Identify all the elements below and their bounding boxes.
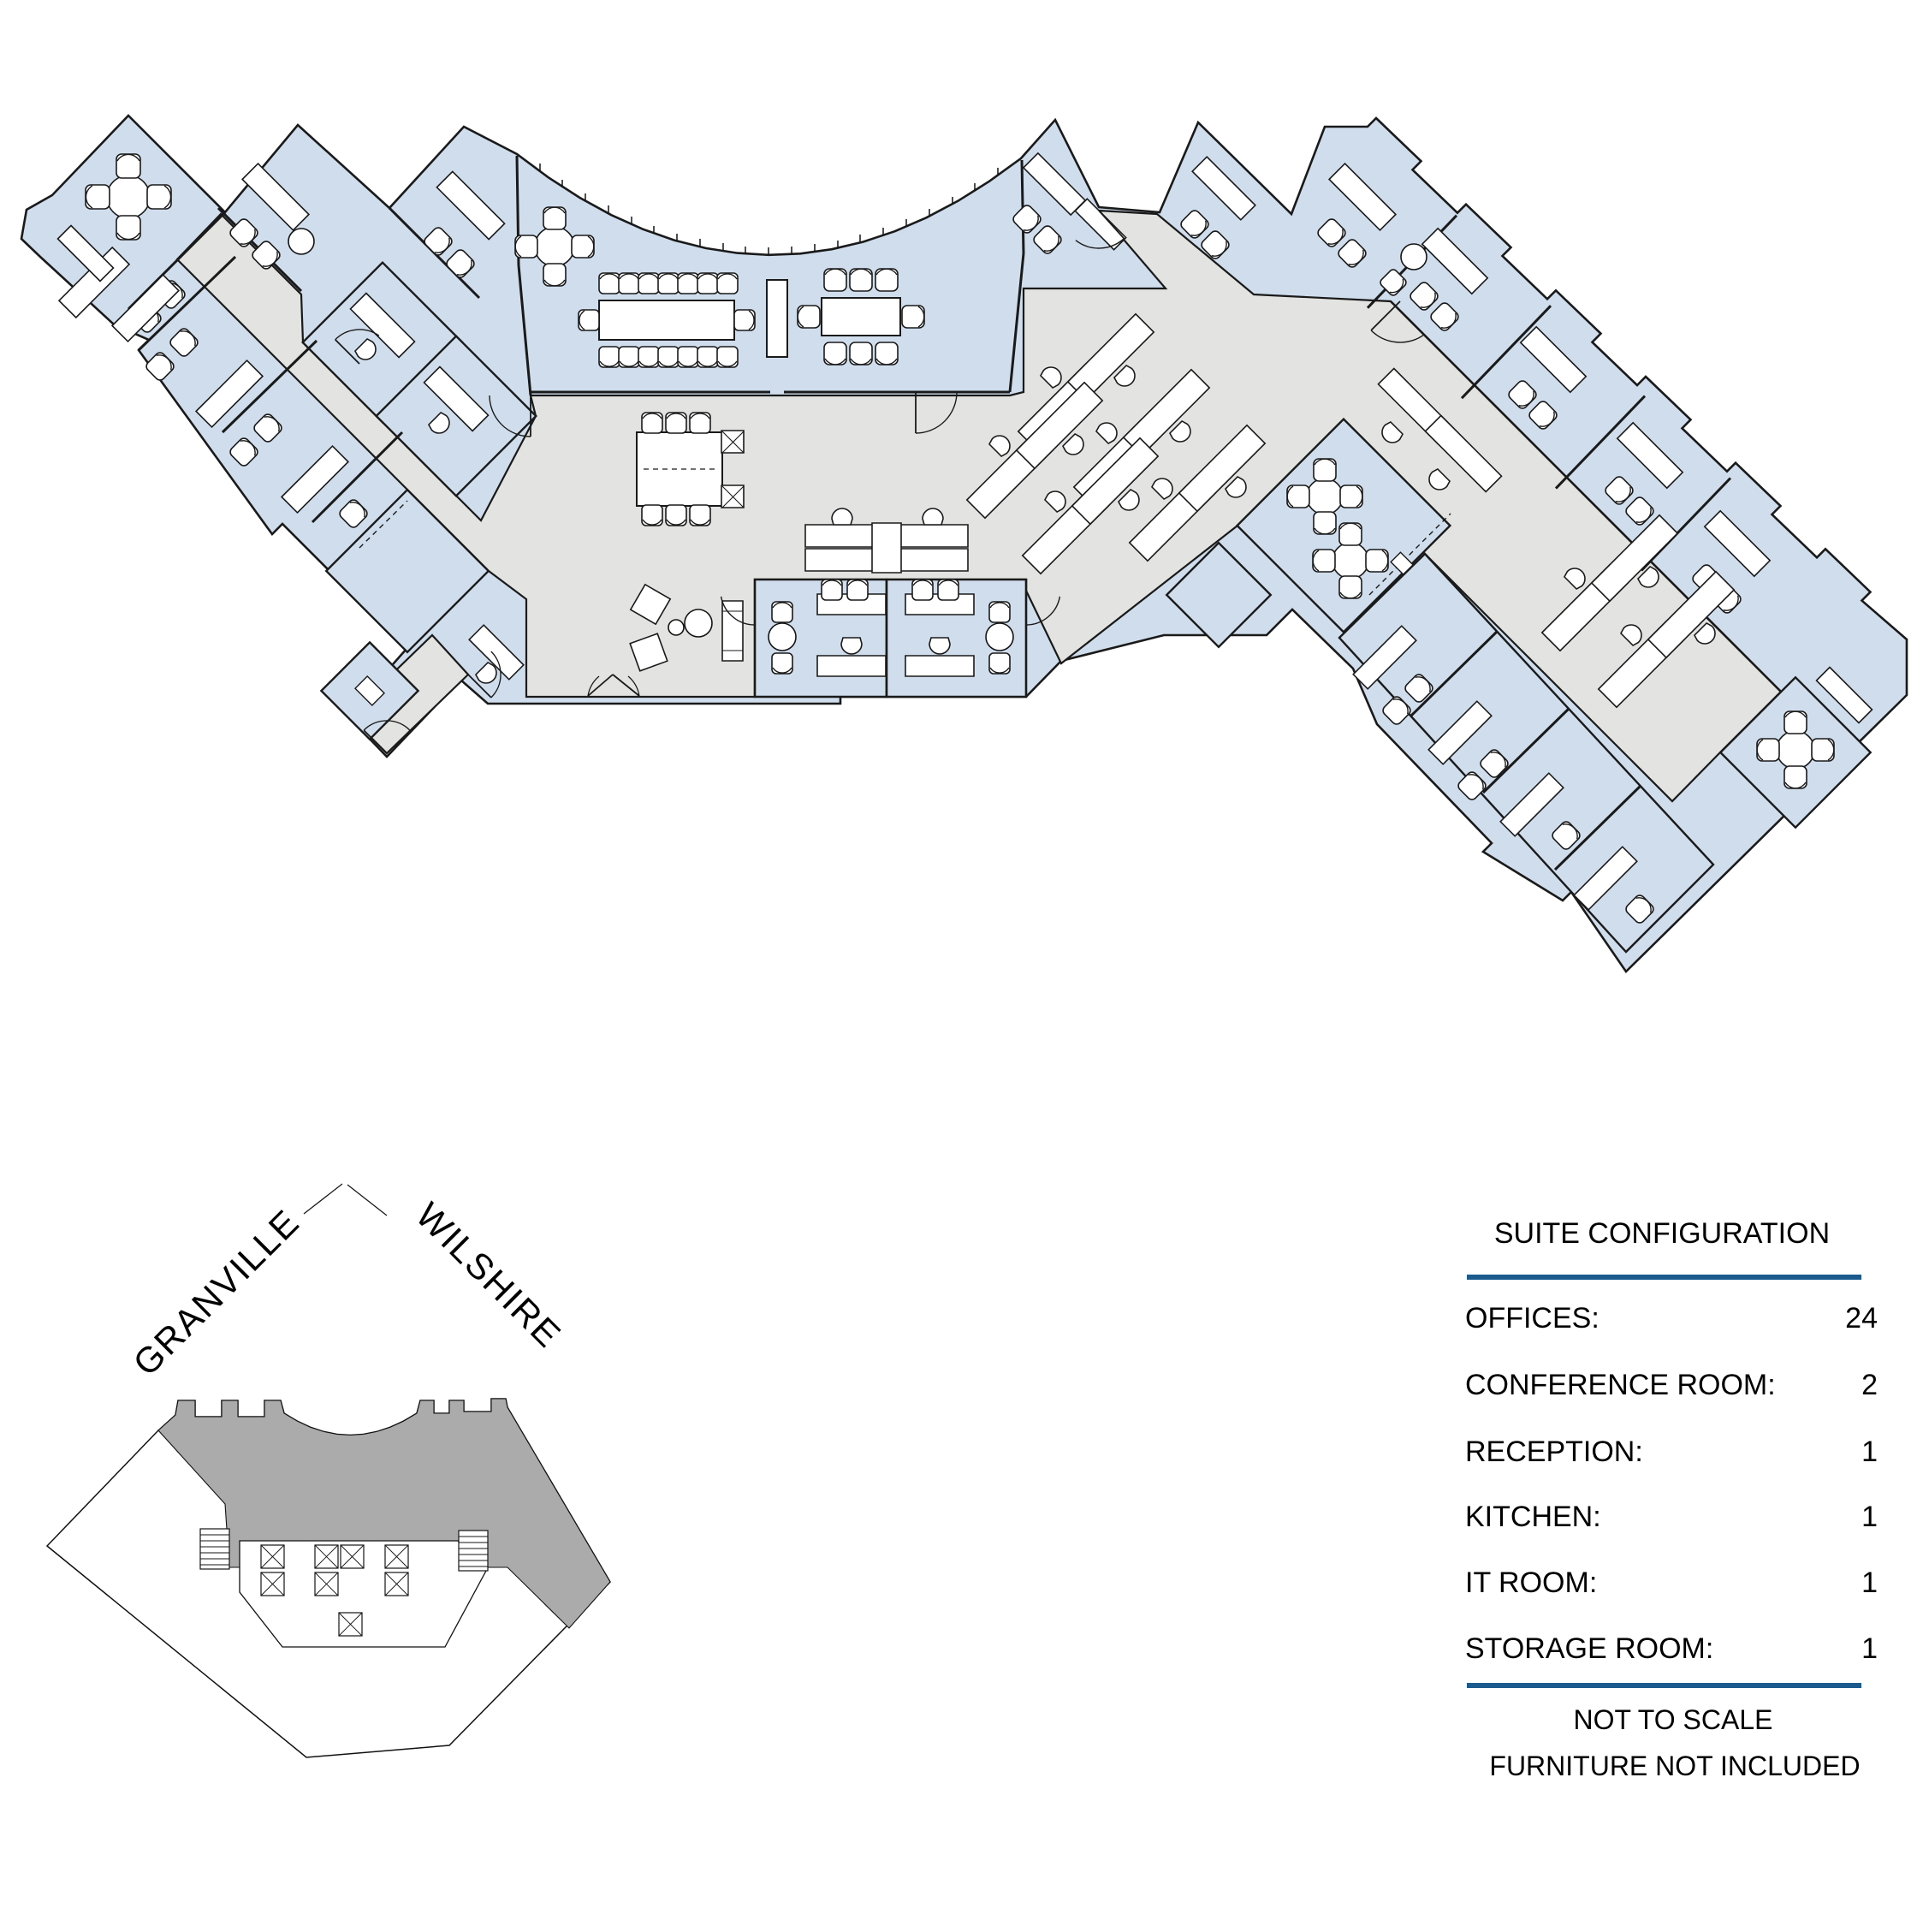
svg-text:1: 1 [1861,1632,1878,1665]
svg-text:KITCHEN:: KITCHEN: [1465,1501,1601,1533]
svg-text:RECEPTION:: RECEPTION: [1465,1436,1643,1468]
svg-text:STORAGE ROOM:: STORAGE ROOM: [1465,1632,1713,1665]
svg-text:OFFICES:: OFFICES: [1465,1302,1599,1335]
svg-text:2: 2 [1861,1369,1878,1401]
svg-text:1: 1 [1861,1501,1878,1533]
svg-text:1: 1 [1861,1566,1878,1599]
svg-text:1: 1 [1861,1436,1878,1468]
svg-text:IT ROOM:: IT ROOM: [1465,1566,1597,1599]
svg-text:CONFERENCE ROOM:: CONFERENCE ROOM: [1465,1369,1776,1401]
svg-text:SUITE CONFIGURATION: SUITE CONFIGURATION [1494,1217,1830,1250]
svg-text:NOT TO SCALE: NOT TO SCALE [1574,1704,1773,1735]
svg-text:24: 24 [1845,1302,1878,1335]
svg-text:FURNITURE NOT INCLUDED: FURNITURE NOT INCLUDED [1489,1751,1860,1781]
